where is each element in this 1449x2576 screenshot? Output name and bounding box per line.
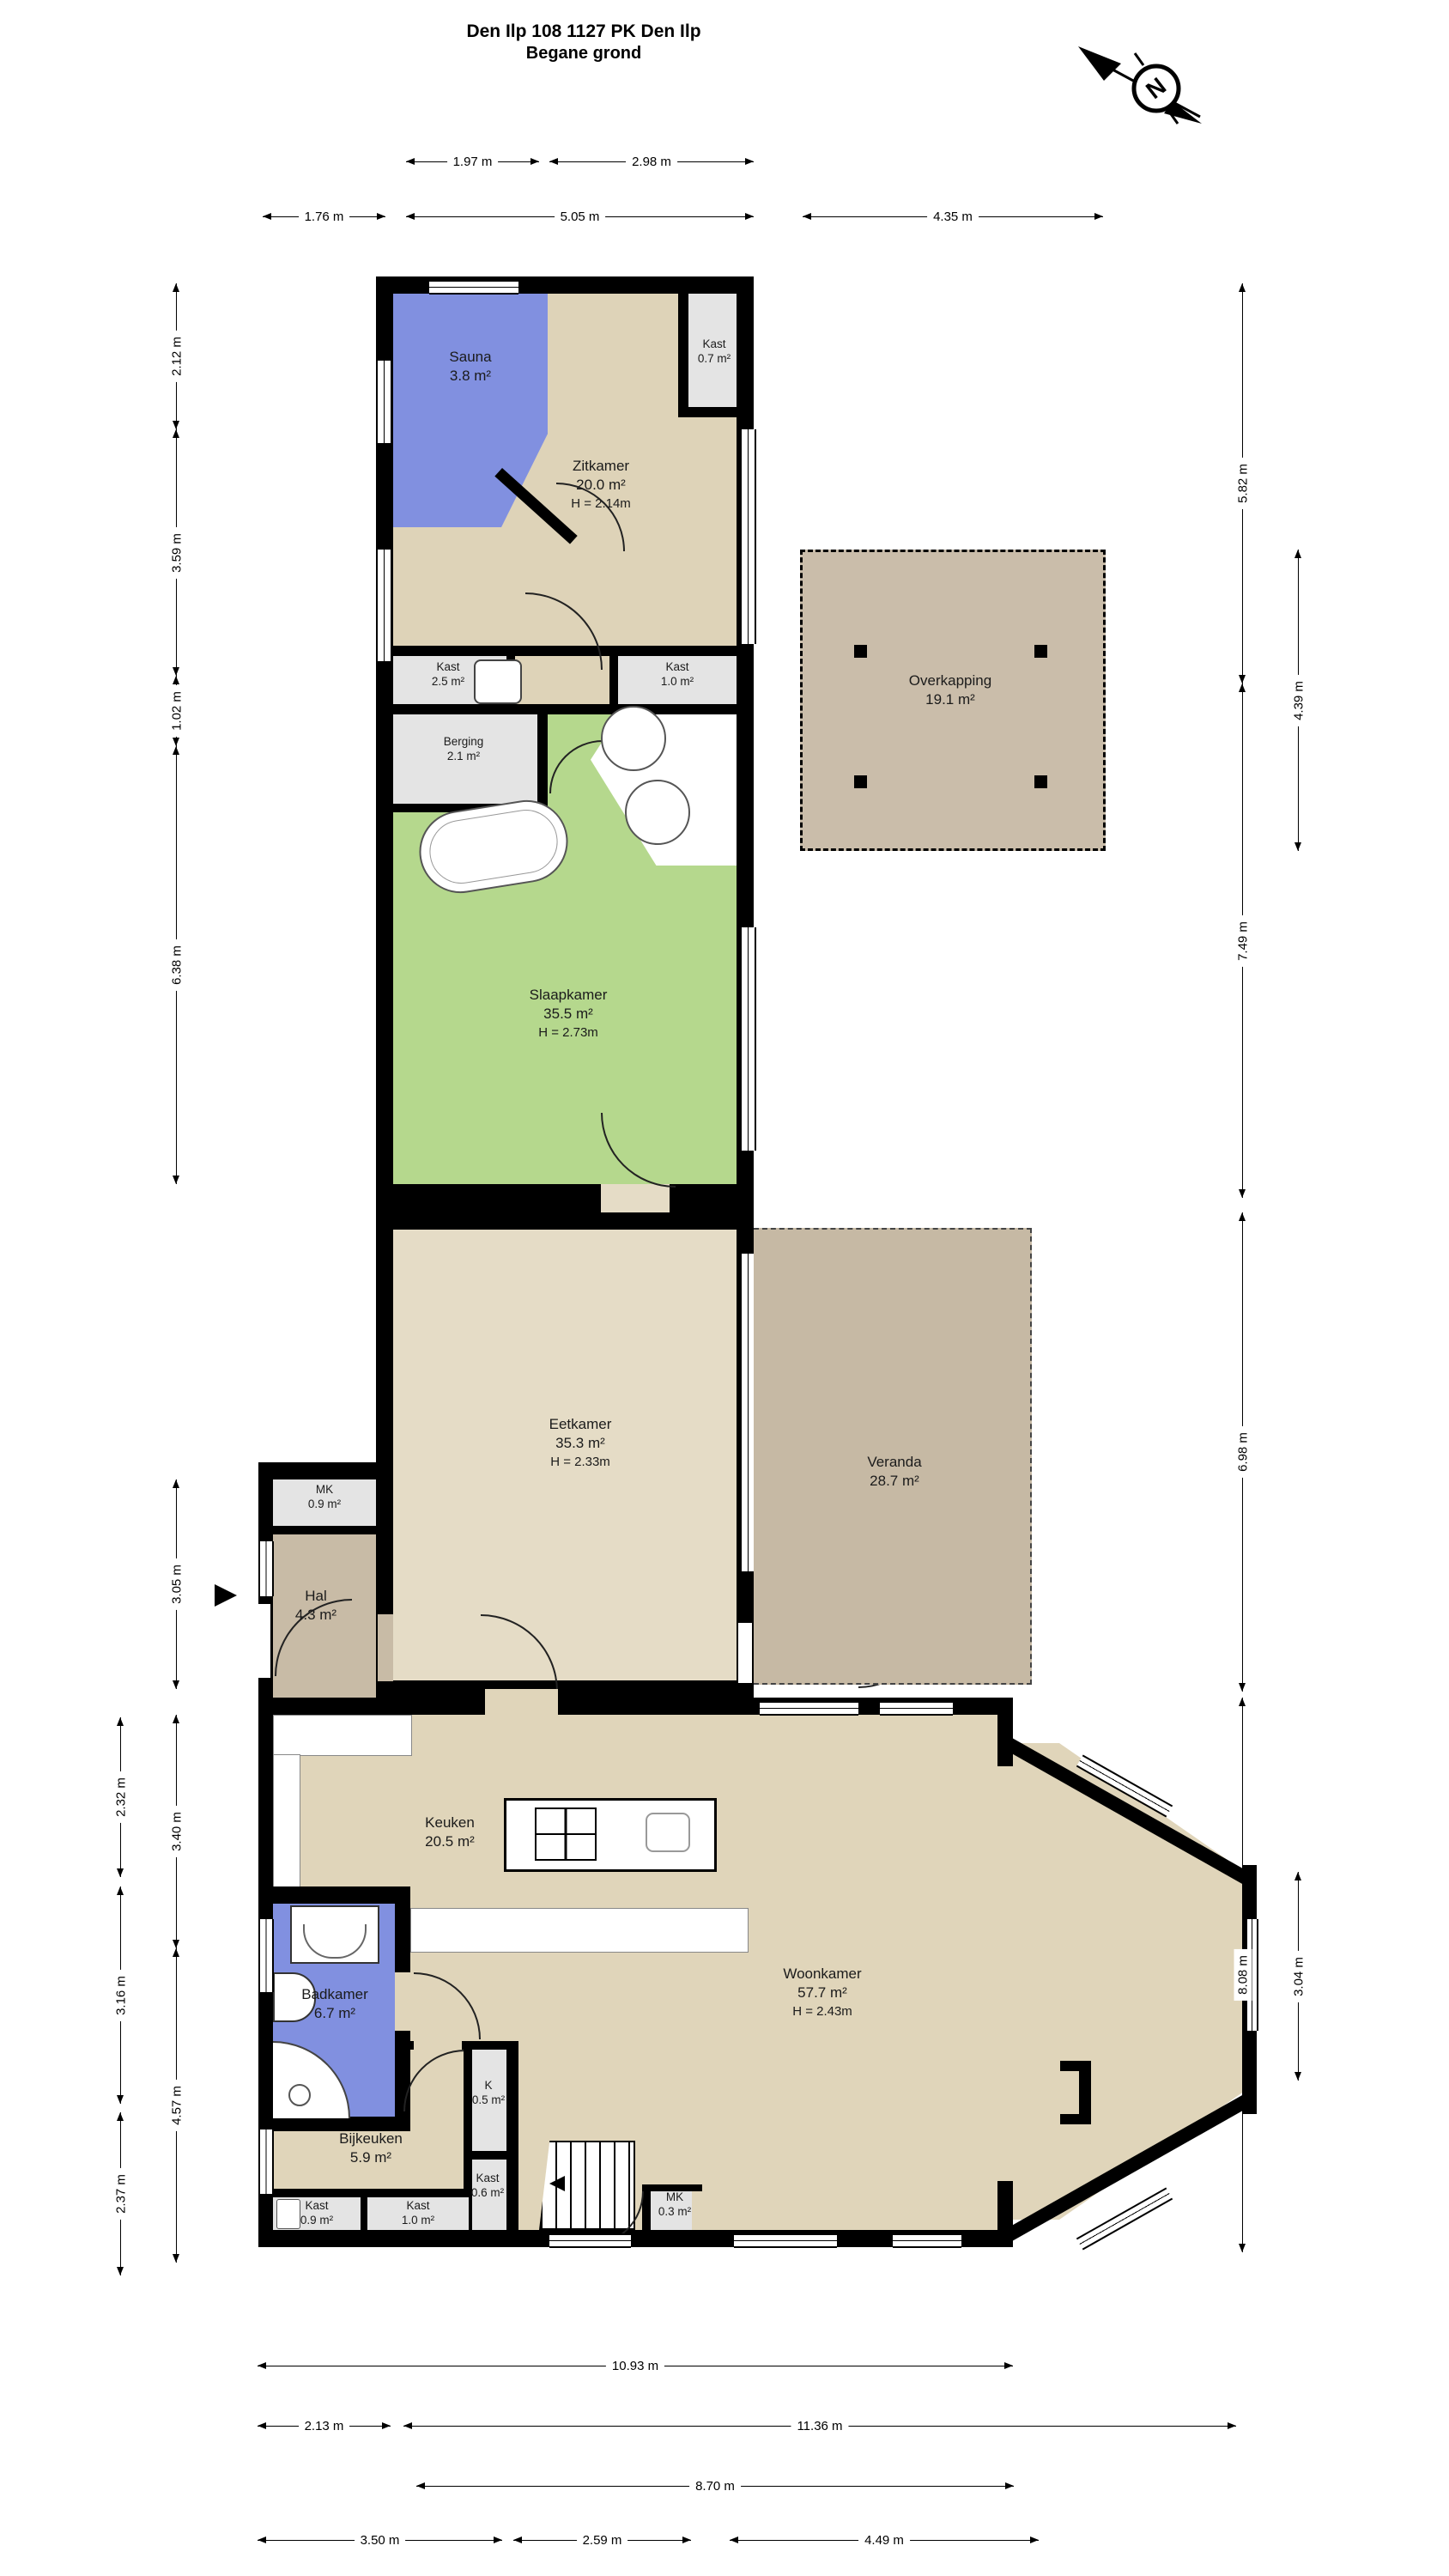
stairs-direction-arrow [549, 2176, 565, 2191]
label-bijkeuken: Bijkeuken5.9 m² [339, 2129, 403, 2167]
wall-k-kast-div [464, 2151, 518, 2160]
label-kast-07: Kast0.7 m² [698, 337, 731, 366]
label-overkapping: Overkapping19.1 m² [909, 671, 991, 709]
label-kast-10b: Kast1.0 m² [402, 2198, 434, 2227]
counter-top [273, 1715, 412, 1756]
wall-berging-right [537, 714, 548, 804]
dim-right-749: 7.49 m [1242, 683, 1243, 1198]
dim-right-582: 5.82 m [1242, 283, 1243, 683]
label-badkamer: Badkamer6.7 m² [301, 1985, 367, 2023]
label-hal: Hal4.3 m² [295, 1587, 336, 1625]
window-woonkamer-top2 [880, 1701, 953, 1716]
post-icon [1034, 775, 1047, 788]
page-title: Den Ilp 108 1127 PK Den Ilp Begane grond [326, 21, 841, 64]
counter-lower [410, 1908, 749, 1953]
label-k-05: K0.5 m² [472, 2078, 505, 2107]
window-bottom1 [549, 2233, 631, 2248]
window-bottom3 [893, 2233, 961, 2248]
window-slaapkamer-right [740, 927, 756, 1151]
dim-bottom-1136: 11.36 m [403, 2426, 1236, 2427]
label-mk-09: MK0.9 m² [308, 1482, 341, 1511]
floorplan-page: Den Ilp 108 1127 PK Den Ilp Begane grond… [0, 0, 1449, 2576]
wall-kastrow-div2 [609, 656, 618, 704]
window-bijkeuken-left [258, 2129, 274, 2194]
dim-right-439: 4.39 m [1298, 550, 1299, 851]
dim-bottom-1093: 10.93 m [258, 2366, 1013, 2366]
wall-mk03-left [642, 2191, 651, 2247]
post-icon [854, 775, 867, 788]
opening-hal-eetkamer [378, 1614, 393, 1681]
fireplace-icon [1060, 2061, 1091, 2124]
dim-left-237: 2.37 m [120, 2112, 121, 2275]
label-keuken: Keuken20.5 m² [425, 1814, 475, 1851]
room-bay [987, 1743, 1245, 2220]
dim-left-232: 2.32 m [120, 1717, 121, 1877]
wall-kast07-bottom [678, 407, 754, 417]
label-sauna: Sauna3.8 m² [449, 348, 491, 386]
wall-mk-bottom [273, 1526, 376, 1534]
wall-kastrow-bottom [393, 704, 737, 714]
dim-left-212: 2.12 m [176, 283, 177, 429]
counter-left [273, 1754, 300, 1888]
wall-badkamer-right-a [395, 1886, 410, 1972]
label-kast-09: Kast0.9 m² [300, 2198, 333, 2227]
sink-icon-2 [625, 780, 690, 845]
dim-left-316: 3.16 m [120, 1886, 121, 2104]
dim-left-457: 4.57 m [176, 1948, 177, 2263]
wall-k-left [464, 2050, 472, 2155]
wall-badkamer-top [273, 1886, 410, 1904]
label-kast-10: Kast1.0 m² [661, 659, 694, 689]
dim-top-197: 1.97 m [406, 161, 539, 162]
dim-top-298: 2.98 m [549, 161, 754, 162]
label-slaapkamer: Slaapkamer35.5 m²H = 2.73m [530, 986, 608, 1042]
label-berging: Berging2.1 m² [444, 734, 484, 763]
wall-bay-stub-top [997, 1698, 1013, 1766]
opening-eetkamer-keuken [485, 1689, 558, 1723]
wall-kastrow2-top [273, 2189, 469, 2197]
dim-right-698: 6.98 m [1242, 1212, 1243, 1692]
label-woonkamer: Woonkamer57.7 m²H = 2.43m [783, 1965, 861, 2020]
dim-bottom-449: 4.49 m [730, 2540, 1039, 2541]
label-mk-03: MK0.3 m² [658, 2190, 691, 2219]
kitchen-island [504, 1798, 717, 1872]
window-woonkamer-top1 [760, 1701, 858, 1716]
compass-north-icon: N [1073, 41, 1210, 131]
appliance-icon [276, 2199, 300, 2229]
dim-bottom-259: 2.59 m [513, 2540, 691, 2541]
opening-badkamer-door [395, 1972, 410, 2031]
label-veranda: Veranda28.7 m² [867, 1453, 921, 1491]
address-line: Den Ilp 108 1127 PK Den Ilp [326, 21, 841, 43]
dim-left-359: 3.59 m [176, 429, 177, 676]
window-hal-left [258, 1541, 274, 1596]
label-kast-06: Kast0.6 m² [471, 2171, 504, 2200]
label-kast-25: Kast2.5 m² [432, 659, 464, 689]
dim-bottom-213: 2.13 m [258, 2426, 391, 2427]
post-icon [854, 645, 867, 658]
island-sink-icon [646, 1813, 690, 1852]
post-icon [1034, 645, 1047, 658]
wall-k-right [506, 2050, 518, 2241]
dim-left-638: 6.38 m [176, 746, 177, 1184]
dim-top-505: 5.05 m [406, 216, 754, 217]
bathtub-icon [290, 1905, 379, 1964]
window-sauna-left [376, 361, 392, 443]
wall-kastrow2-div [361, 2197, 367, 2230]
window-badkamer-left [258, 1919, 274, 1992]
front-door-opening [258, 1604, 270, 1678]
wall-bay-stub-bottom [997, 2181, 1013, 2247]
dim-left-340: 3.40 m [176, 1715, 177, 1948]
dim-top-176: 1.76 m [263, 216, 385, 217]
label-eetkamer: Eetkamer35.3 m²H = 2.33m [549, 1415, 612, 1471]
dim-left-305: 3.05 m [176, 1479, 177, 1689]
dim-top-435: 4.35 m [803, 216, 1103, 217]
dim-bottom-870: 8.70 m [416, 2486, 1014, 2487]
entrance-arrow-icon [215, 1584, 237, 1607]
dim-bottom-350: 3.50 m [258, 2540, 502, 2541]
stove-icon [535, 1807, 597, 1861]
sink-icon-1 [601, 706, 666, 771]
window-zitkamer-left [376, 550, 392, 661]
opening-eetkamer-veranda [738, 1623, 752, 1683]
floor-line: Begane grond [326, 43, 841, 64]
boiler-icon [474, 659, 522, 704]
label-zitkamer: Zitkamer20.0 m²H = 2.14m [571, 457, 631, 513]
dim-left-102: 1.02 m [176, 676, 177, 746]
dim-right-304: 3.04 m [1298, 1872, 1299, 2081]
window-bottom2 [734, 2233, 837, 2248]
window-zitkamer-right [740, 429, 756, 644]
window-sauna-top [429, 280, 518, 295]
dim-right-808: 8.08 m [1242, 1698, 1243, 2252]
wall-kast07 [678, 294, 688, 414]
opening-bijkeuken [414, 2041, 462, 2050]
